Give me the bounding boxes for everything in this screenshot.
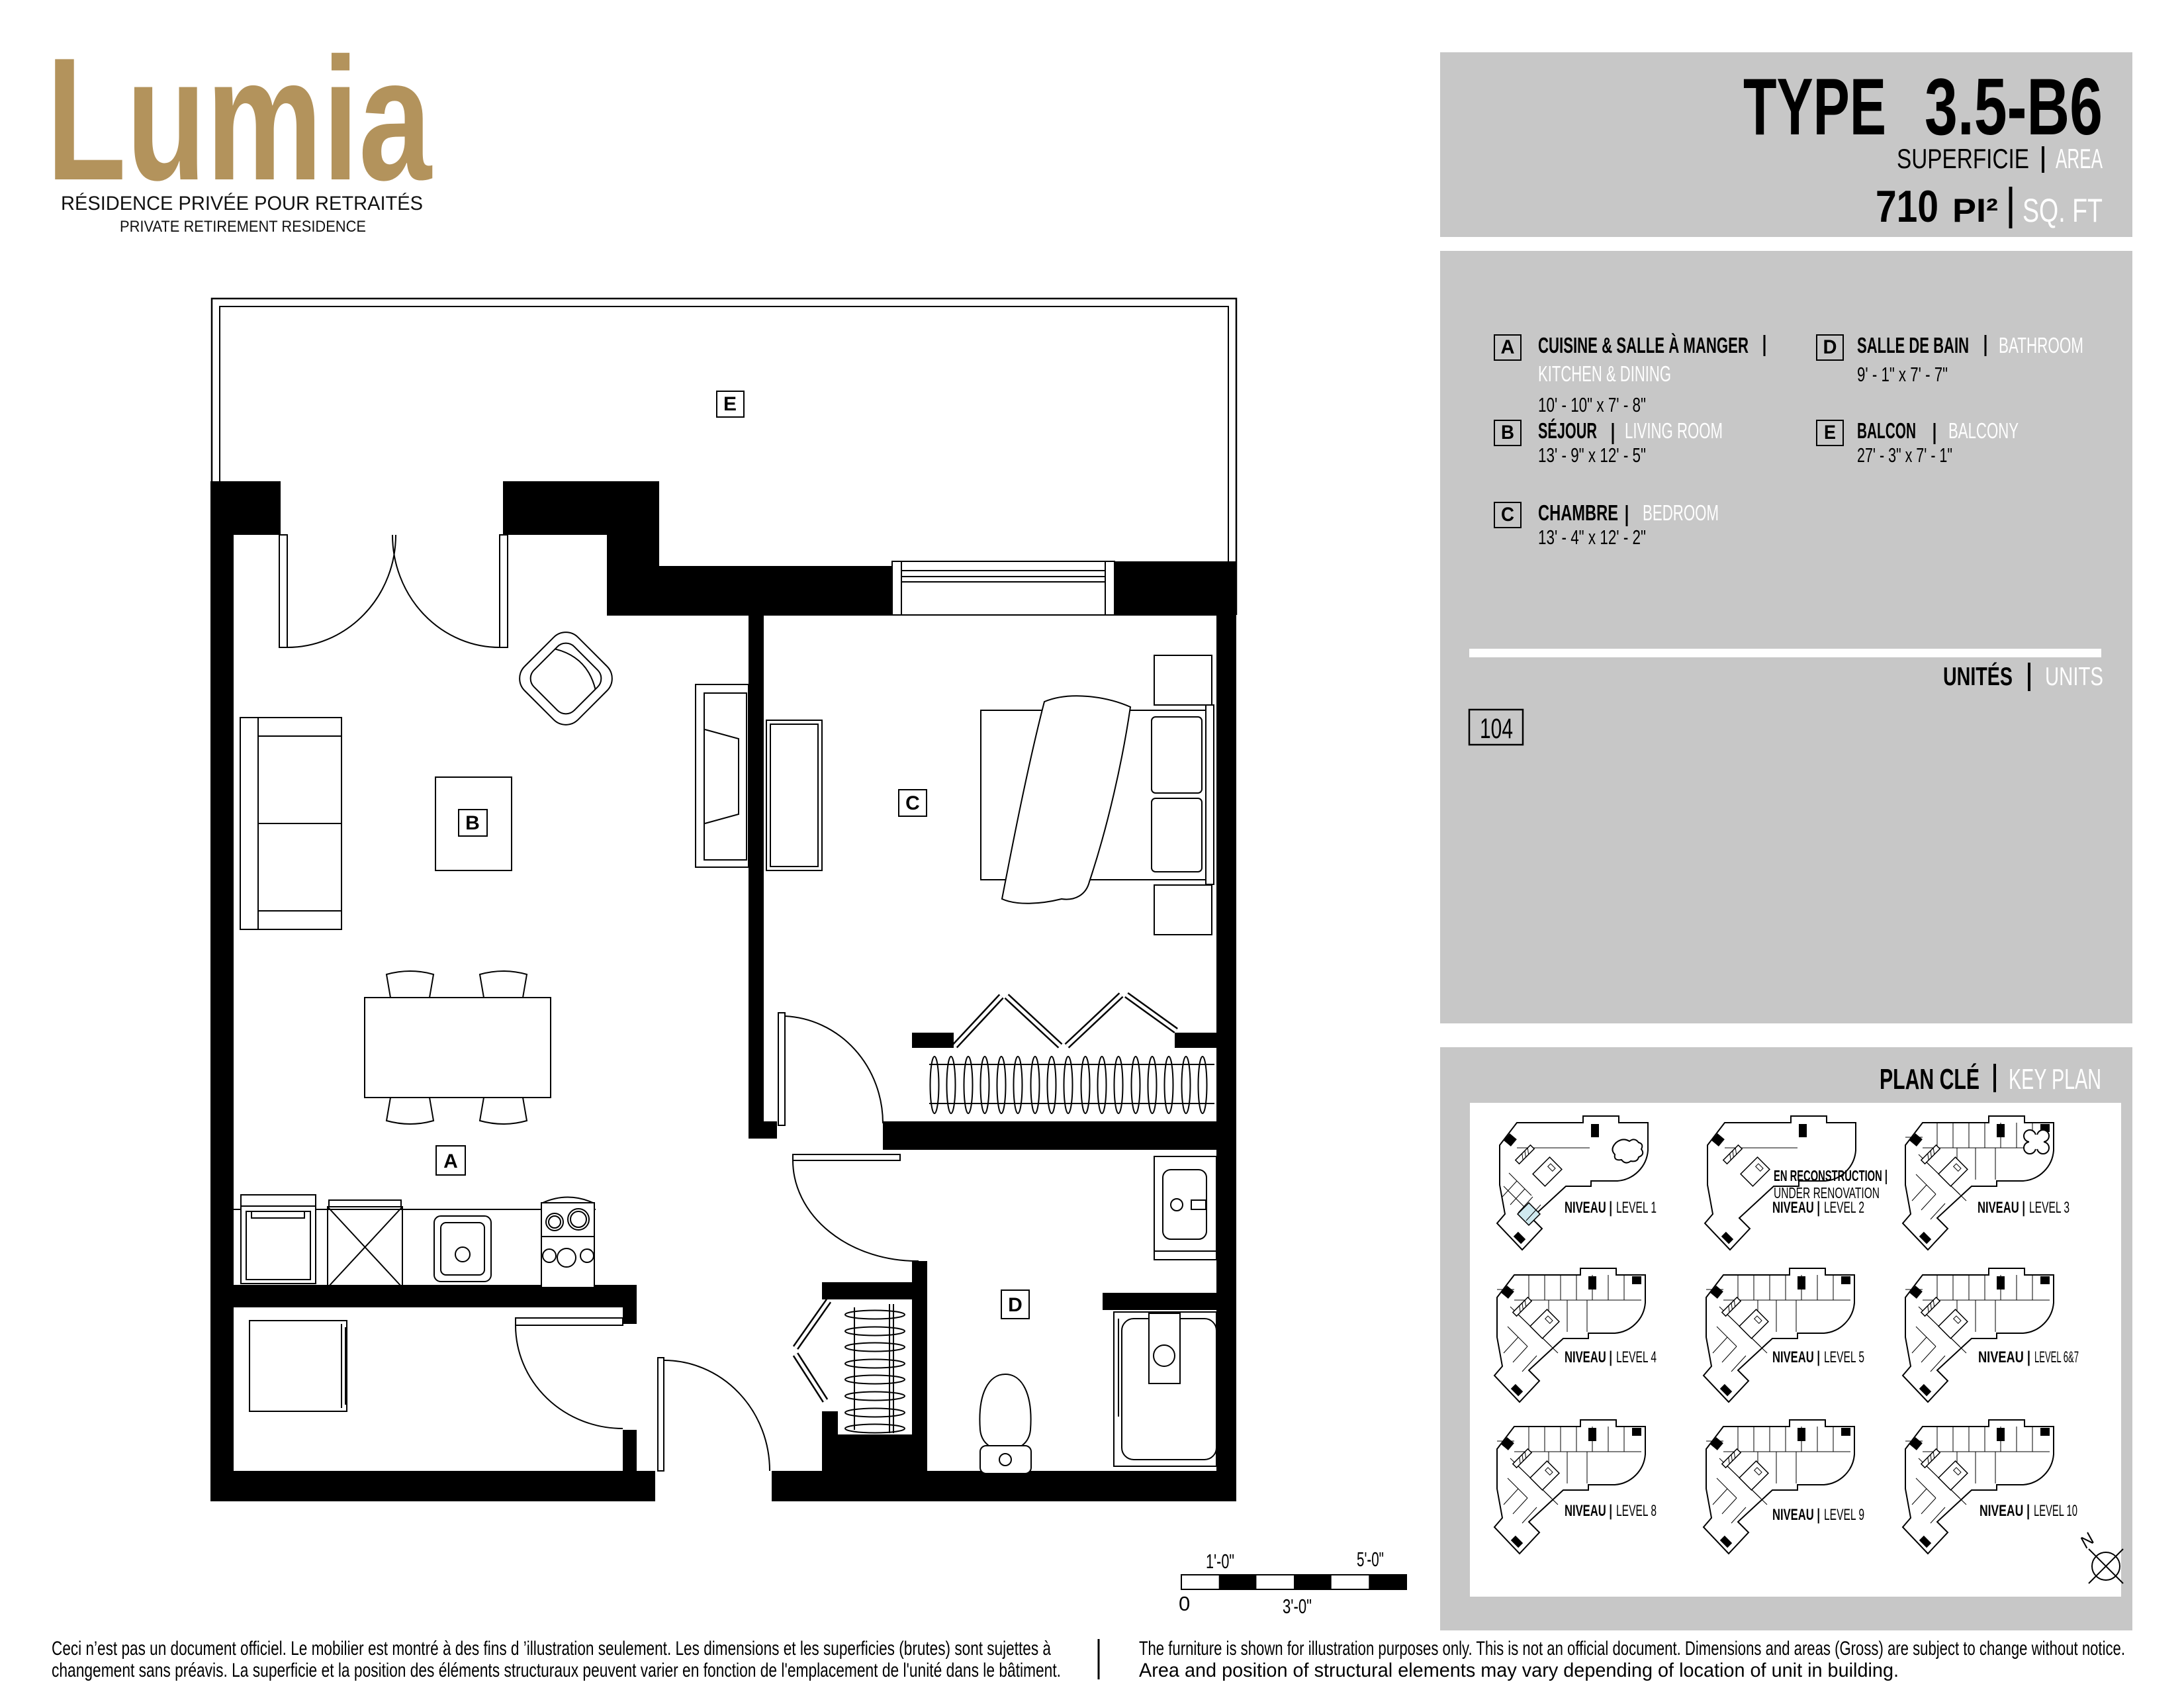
svg-text:KEY PLAN: KEY PLAN	[2009, 1063, 2101, 1096]
svg-text:E: E	[1824, 422, 1836, 444]
svg-text:3.5-B6: 3.5-B6	[1925, 62, 2103, 152]
svg-text:104: 104	[1480, 713, 1513, 745]
svg-text:PI²: PI²	[1952, 192, 1998, 229]
svg-text:NIVEAU |: NIVEAU |	[1772, 1348, 1820, 1366]
svg-text:UNITS: UNITS	[2045, 663, 2103, 691]
svg-text:10' - 10" x 7' - 8": 10' - 10" x 7' - 8"	[1538, 393, 1646, 416]
svg-text:EN RECONSTRUCTION |: EN RECONSTRUCTION |	[1774, 1167, 1888, 1184]
svg-text:SÉJOUR: SÉJOUR	[1538, 418, 1597, 443]
svg-text:NIVEAU |: NIVEAU |	[1772, 1506, 1820, 1524]
svg-text:NIVEAU |: NIVEAU |	[1978, 1199, 2025, 1217]
svg-text:NIVEAU |: NIVEAU |	[1565, 1502, 1612, 1520]
svg-text:BALCON: BALCON	[1857, 418, 1916, 443]
svg-text:NIVEAU |: NIVEAU |	[1565, 1348, 1612, 1366]
svg-text:1'-0": 1'-0"	[1206, 1550, 1234, 1573]
svg-text:C: C	[1501, 504, 1514, 526]
svg-text:RÉSIDENCE PRIVÉE POUR RETRAITÉ: RÉSIDENCE PRIVÉE POUR RETRAITÉS	[61, 193, 423, 214]
svg-text:LEVEL 1: LEVEL 1	[1616, 1199, 1657, 1217]
svg-text:BEDROOM: BEDROOM	[1643, 500, 1719, 525]
svg-text:27' - 3" x 7' - 1": 27' - 3" x 7' - 1"	[1857, 444, 1952, 467]
svg-text:TYPE: TYPE	[1743, 62, 1886, 152]
svg-text:BALCONY: BALCONY	[1948, 418, 2019, 443]
svg-text:3'-0": 3'-0"	[1283, 1595, 1312, 1618]
svg-text:CUISINE & SALLE À MANGER: CUISINE & SALLE À MANGER	[1538, 333, 1749, 357]
svg-text:LEVEL 6&7: LEVEL 6&7	[2034, 1348, 2079, 1366]
svg-text:NIVEAU |: NIVEAU |	[1978, 1348, 2030, 1366]
svg-text:SALLE DE BAIN: SALLE DE BAIN	[1857, 333, 1969, 357]
svg-text:LEVEL 9: LEVEL 9	[1824, 1506, 1864, 1524]
svg-text:PLAN CLÉ: PLAN CLÉ	[1880, 1062, 1979, 1096]
svg-text:D: D	[1823, 336, 1837, 358]
svg-text:E: E	[723, 393, 737, 415]
svg-text:5'-0": 5'-0"	[1357, 1548, 1384, 1571]
svg-text:B: B	[1501, 422, 1514, 444]
svg-text:D: D	[1008, 1294, 1023, 1316]
svg-text:LEVEL 8: LEVEL 8	[1616, 1502, 1657, 1520]
svg-text:NIVEAU |: NIVEAU |	[1772, 1199, 1820, 1217]
svg-text:C: C	[905, 792, 920, 814]
svg-text:AREA: AREA	[2056, 143, 2103, 174]
svg-text:PRIVATE RETIREMENT RESIDENCE: PRIVATE RETIREMENT RESIDENCE	[120, 218, 366, 236]
svg-text:The furniture is shown for ill: The furniture is shown for illustration …	[1139, 1638, 2125, 1660]
svg-text:Lumia: Lumia	[46, 21, 432, 216]
svg-text:Ceci n’est pas un document off: Ceci n’est pas un document officiel. Le …	[52, 1638, 1051, 1660]
svg-text:LEVEL 4: LEVEL 4	[1616, 1348, 1657, 1366]
svg-text:LEVEL 3: LEVEL 3	[2029, 1199, 2070, 1217]
svg-text:changement sans préavis. La su: changement sans préavis. La superficie e…	[52, 1660, 1061, 1681]
svg-text:NIVEAU |: NIVEAU |	[1979, 1502, 2030, 1520]
svg-text:SUPERFICIE: SUPERFICIE	[1897, 143, 2029, 174]
svg-text:B: B	[465, 812, 480, 834]
svg-text:Area and position of structura: Area and position of structural elements…	[1139, 1660, 1899, 1681]
svg-text:LEVEL 5: LEVEL 5	[1824, 1348, 1864, 1366]
svg-text:9' - 1" x 7' - 7": 9' - 1" x 7' - 7"	[1857, 363, 1948, 386]
svg-text:NIVEAU |: NIVEAU |	[1565, 1199, 1612, 1217]
svg-text:LEVEL 2: LEVEL 2	[1824, 1199, 1864, 1217]
svg-text:CHAMBRE: CHAMBRE	[1538, 500, 1618, 525]
svg-text:BATHROOM: BATHROOM	[1999, 333, 2083, 357]
svg-text:LEVEL 10: LEVEL 10	[2034, 1502, 2077, 1520]
svg-text:13' - 9" x 12' - 5": 13' - 9" x 12' - 5"	[1538, 444, 1646, 467]
svg-text:A: A	[443, 1150, 458, 1172]
svg-text:A: A	[1501, 336, 1515, 358]
svg-text:710: 710	[1876, 181, 1938, 232]
svg-text:13' - 4" x 12' - 2": 13' - 4" x 12' - 2"	[1538, 526, 1646, 549]
svg-text:UNITÉS: UNITÉS	[1943, 662, 2013, 691]
svg-text:LIVING ROOM: LIVING ROOM	[1625, 418, 1723, 443]
svg-text:0: 0	[1179, 1592, 1190, 1615]
svg-text:KITCHEN & DINING: KITCHEN & DINING	[1538, 361, 1671, 386]
svg-text:SQ. FT: SQ. FT	[2023, 192, 2103, 229]
